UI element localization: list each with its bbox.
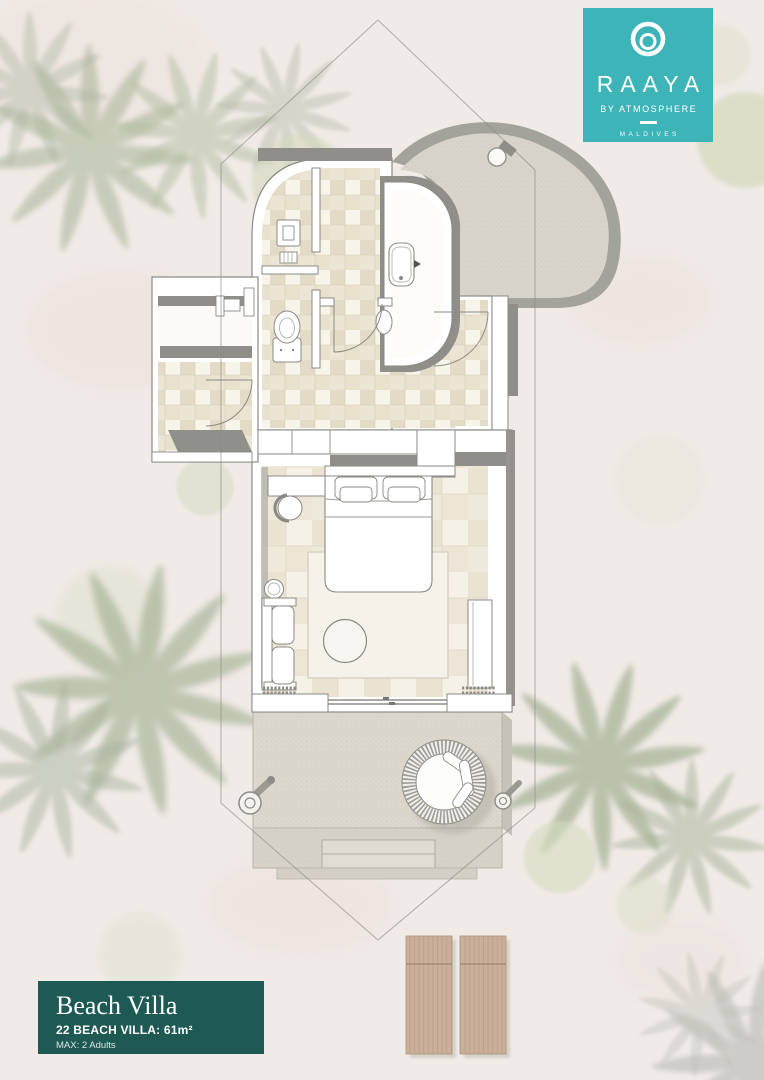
brand-location: MALDIVES (620, 131, 680, 138)
porch-bench (216, 296, 224, 316)
bathroom-window (244, 288, 254, 316)
bush (177, 459, 234, 516)
villa-max: MAX: 2 Adults (56, 1040, 264, 1051)
bush (617, 877, 674, 934)
brand-logo-panel: RAAYA BY ATMOSPHERE MALDIVES (583, 8, 713, 142)
brand-divider (640, 121, 657, 124)
toilet (273, 311, 301, 362)
stool (275, 495, 302, 521)
headboard (325, 466, 455, 476)
entry-step-shadow (168, 430, 252, 452)
sun-deck (239, 712, 519, 879)
double-bed (325, 476, 432, 592)
desk (268, 476, 325, 496)
villa-title: Beach Villa (56, 992, 264, 1019)
floorplan-drawing (0, 0, 764, 1080)
shower (277, 220, 300, 263)
raaya-rings-icon (625, 18, 671, 69)
beach-loungers (406, 936, 510, 1058)
side-table (265, 580, 284, 599)
floorplan-page: RAAYA BY ATMOSPHERE MALDIVES Beach Villa… (0, 0, 764, 1080)
faucet (399, 276, 403, 280)
washbasin-pod (376, 176, 460, 372)
beach-lounger (460, 936, 510, 1058)
villa-spec: 22 BEACH VILLA: 61m² (56, 1023, 264, 1037)
beach-lounger (406, 936, 456, 1058)
brand-name: RAAYA (597, 71, 707, 98)
ottoman (324, 620, 367, 663)
bush (615, 435, 705, 525)
outdoor-shower-head (488, 148, 506, 166)
daybed-bench (468, 600, 492, 688)
brand-tagline: BY ATMOSPHERE (600, 104, 697, 114)
bush (524, 821, 596, 893)
villa-info-panel: Beach Villa 22 BEACH VILLA: 61m² MAX: 2 … (38, 981, 264, 1054)
